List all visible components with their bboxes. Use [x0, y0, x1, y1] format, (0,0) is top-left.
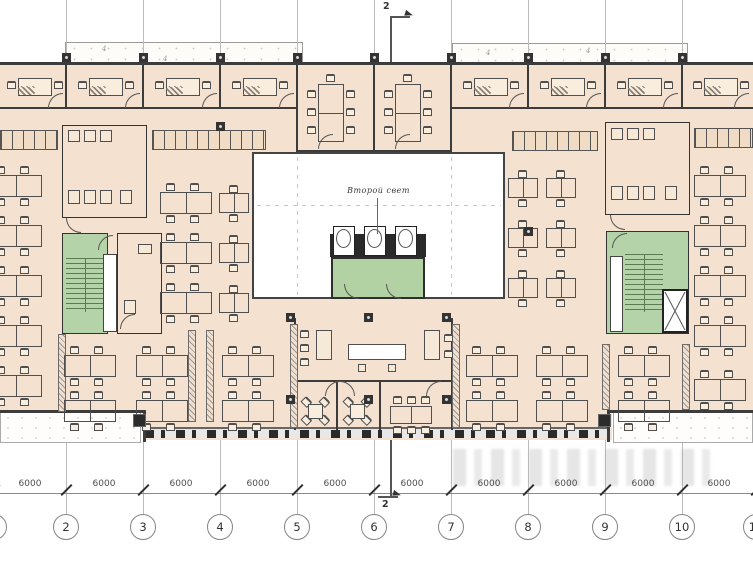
canopy-mark: 4: [586, 47, 590, 55]
section-line-top: [390, 16, 392, 62]
chair: [20, 366, 29, 374]
chair: [307, 126, 316, 134]
chair: [20, 216, 29, 224]
chair: [423, 90, 432, 98]
chair: [556, 270, 565, 278]
floor-plan: Второй свет 2 2 600060006000600060006000…: [0, 0, 753, 565]
dimension-label: 6000: [324, 479, 347, 489]
chair: [463, 81, 472, 89]
desk: [222, 400, 274, 422]
chair: [556, 249, 565, 257]
fixture: [643, 128, 655, 140]
chair: [166, 378, 175, 386]
chair: [556, 220, 565, 228]
chair: [556, 170, 565, 178]
section-label-top: 2: [383, 1, 390, 12]
desk: [0, 325, 42, 347]
section-label-bottom: 2: [382, 499, 389, 510]
desk: [160, 242, 212, 264]
chair: [421, 426, 430, 434]
chair: [228, 423, 237, 431]
chair: [518, 299, 527, 307]
chair: [700, 216, 709, 224]
column: [139, 53, 148, 62]
fixture: [68, 130, 80, 142]
chair: [346, 108, 355, 116]
grid-bubble: 1: [0, 514, 7, 540]
dimension-label: 6000: [478, 479, 501, 489]
chair: [142, 378, 151, 386]
desk: [508, 178, 538, 198]
chair: [229, 235, 238, 243]
wall: [0, 107, 297, 109]
stool: [358, 364, 366, 372]
chair: [407, 396, 416, 404]
grid-bubble: 8: [515, 514, 541, 540]
desk-hatch: [19, 87, 35, 95]
chair: [724, 348, 733, 356]
section-line-bottom: [390, 440, 392, 497]
desk: [0, 175, 42, 197]
desk-hatch: [552, 87, 568, 95]
chair: [229, 285, 238, 293]
chair: [252, 391, 261, 399]
chair: [78, 81, 87, 89]
curtain-wall-band: [145, 430, 610, 438]
chair: [648, 391, 657, 399]
grid-bubble: 10: [669, 514, 695, 540]
chair: [0, 366, 5, 374]
desk: [0, 375, 42, 397]
chair: [700, 370, 709, 378]
chair: [252, 378, 261, 386]
dimension-label: 6000: [632, 479, 655, 489]
fixture: [627, 128, 639, 140]
chair: [166, 183, 175, 191]
desk: [536, 355, 588, 377]
partition-screen: [206, 330, 214, 422]
dimension-label: 6000: [93, 479, 116, 489]
dimension-tick: [0, 484, 1, 496]
wall: [451, 107, 753, 109]
chair: [566, 423, 575, 431]
column: [293, 53, 302, 62]
column: [524, 53, 533, 62]
chair: [125, 81, 134, 89]
cabinet-row: [512, 131, 598, 151]
chair: [0, 216, 5, 224]
chair: [542, 391, 551, 399]
desk: [694, 379, 746, 401]
chair: [556, 299, 565, 307]
chair: [624, 423, 633, 431]
chair: [566, 391, 575, 399]
fixture: [68, 190, 80, 204]
desk: [0, 225, 42, 247]
chair: [384, 108, 393, 116]
grid-bubble: 7: [438, 514, 464, 540]
wall: [65, 64, 67, 107]
desk: [219, 243, 249, 263]
wall: [219, 64, 221, 107]
chair: [0, 348, 5, 356]
chair: [326, 74, 335, 82]
chair: [566, 378, 575, 386]
canopy-mark: 4: [102, 45, 106, 53]
stair-treads-left: [66, 258, 104, 312]
shaft-right: [662, 289, 688, 333]
chair: [0, 198, 5, 206]
chair: [664, 81, 673, 89]
chair: [142, 391, 151, 399]
chair: [648, 378, 657, 386]
chair: [700, 348, 709, 356]
fixture: [665, 186, 677, 200]
column: [364, 313, 373, 322]
chair: [472, 391, 481, 399]
desk: [0, 275, 42, 297]
desk: [160, 292, 212, 314]
cabinet-row: [152, 130, 266, 150]
desk-hatch: [629, 87, 645, 95]
grid-bubble: 11: [743, 514, 753, 540]
desk: [546, 228, 576, 248]
chair: [252, 423, 261, 431]
dimension-label: 6000: [708, 479, 731, 489]
elevator-left: [103, 254, 117, 332]
chair: [166, 233, 175, 241]
dimension-label: 6000: [19, 479, 42, 489]
fixture: [100, 130, 112, 142]
chair: [566, 346, 575, 354]
chair: [724, 248, 733, 256]
desk: [694, 325, 746, 347]
desk: [219, 193, 249, 213]
chair: [190, 233, 199, 241]
chair: [346, 126, 355, 134]
chair: [624, 391, 633, 399]
chair: [724, 298, 733, 306]
chair: [70, 346, 79, 354]
chair: [423, 126, 432, 134]
chair: [190, 183, 199, 191]
chair: [724, 216, 733, 224]
wall: [296, 64, 298, 152]
chair: [444, 350, 453, 358]
chair: [518, 270, 527, 278]
desk-hatch: [244, 87, 260, 95]
chair: [403, 74, 412, 82]
chair: [166, 423, 175, 431]
chair: [624, 346, 633, 354]
chair: [542, 423, 551, 431]
dimension-label: 6000: [555, 479, 578, 489]
chair: [346, 90, 355, 98]
desk: [466, 355, 518, 377]
chair: [20, 198, 29, 206]
wall: [604, 64, 606, 107]
chair: [740, 81, 749, 89]
cafe-table: [350, 404, 365, 419]
elevator-axis-line: [377, 198, 378, 234]
atrium-axis-dashed: [451, 157, 452, 295]
dimension-label: 6000: [170, 479, 193, 489]
fixture: [84, 130, 96, 142]
fixture: [611, 128, 623, 140]
chair: [472, 378, 481, 386]
cabinet-row: [0, 130, 58, 150]
canopy-mark: 4: [486, 49, 490, 57]
chair: [700, 316, 709, 324]
desk: [694, 225, 746, 247]
atrium-label: Второй свет: [254, 186, 503, 195]
wall: [379, 382, 381, 430]
chair: [70, 378, 79, 386]
chair: [7, 81, 16, 89]
chair: [166, 315, 175, 323]
chair: [166, 283, 175, 291]
chair: [20, 266, 29, 274]
fixture: [124, 300, 136, 314]
atrium-axis-dashed: [297, 157, 298, 295]
stair-treads-right: [625, 254, 663, 312]
chair: [724, 370, 733, 378]
chair: [20, 348, 29, 356]
chair: [166, 215, 175, 223]
chair: [0, 298, 5, 306]
chair: [155, 81, 164, 89]
chair: [724, 316, 733, 324]
grid-bubble: 4: [207, 514, 233, 540]
chair: [421, 396, 430, 404]
chair: [624, 378, 633, 386]
chair: [724, 402, 733, 410]
stool: [388, 364, 396, 372]
chair: [407, 426, 416, 434]
chair: [384, 126, 393, 134]
chair: [20, 398, 29, 406]
grid-bubble: 5: [284, 514, 310, 540]
partition-screen: [290, 324, 298, 428]
chair: [693, 81, 702, 89]
desk: [64, 355, 116, 377]
wall: [296, 150, 452, 152]
column: [364, 395, 373, 404]
wall: [373, 64, 375, 152]
chair: [496, 423, 505, 431]
chair: [190, 265, 199, 273]
desk: [466, 400, 518, 422]
desk: [694, 275, 746, 297]
chair: [496, 346, 505, 354]
desk-hatch: [167, 87, 183, 95]
chair: [20, 316, 29, 324]
column: [524, 227, 533, 236]
chair: [228, 346, 237, 354]
chair: [700, 298, 709, 306]
chair: [510, 81, 519, 89]
desk: [546, 178, 576, 198]
chair: [307, 90, 316, 98]
chair: [229, 214, 238, 222]
fixture: [643, 186, 655, 200]
chair: [70, 391, 79, 399]
fixture: [316, 330, 332, 360]
chair: [190, 215, 199, 223]
dimension-label: 6000: [401, 479, 424, 489]
column: [286, 313, 295, 322]
column: [442, 395, 451, 404]
chair: [617, 81, 626, 89]
column: [286, 395, 295, 404]
chair: [94, 391, 103, 399]
chair: [232, 81, 241, 89]
shaft-x-icon: [664, 291, 686, 331]
elevator-lobby: [331, 257, 425, 299]
chair: [94, 423, 103, 431]
chair: [542, 346, 551, 354]
chair: [229, 264, 238, 272]
chair: [228, 391, 237, 399]
chair: [190, 283, 199, 291]
partition-screen: [452, 324, 460, 428]
chair: [229, 185, 238, 193]
partition-screen: [682, 344, 690, 410]
cafe-table: [308, 404, 323, 419]
desk: [508, 278, 538, 298]
meeting-table: [390, 406, 432, 424]
chair: [166, 391, 175, 399]
column: [216, 122, 225, 131]
chair: [300, 344, 309, 352]
partition-screen: [188, 330, 196, 422]
column: [62, 53, 71, 62]
wall: [450, 64, 452, 152]
chair: [700, 166, 709, 174]
wall: [527, 64, 529, 107]
chair: [142, 346, 151, 354]
chair: [0, 316, 5, 324]
chair: [542, 378, 551, 386]
chair: [423, 108, 432, 116]
column: [216, 53, 225, 62]
chair: [700, 198, 709, 206]
chair: [587, 81, 596, 89]
chair: [307, 108, 316, 116]
chair: [648, 423, 657, 431]
desk: [136, 355, 188, 377]
fixture: [627, 186, 639, 200]
chair: [190, 315, 199, 323]
chair: [252, 346, 261, 354]
chair: [166, 265, 175, 273]
chair: [472, 346, 481, 354]
column: [442, 313, 451, 322]
fixture: [611, 186, 623, 200]
fixture: [138, 244, 152, 254]
atrium-axis-dashed: [257, 205, 501, 206]
elevator-car-oval: [398, 229, 413, 248]
chair: [700, 248, 709, 256]
grid-bubble: 2: [53, 514, 79, 540]
chair: [70, 423, 79, 431]
chair: [556, 199, 565, 207]
chair: [20, 298, 29, 306]
fixture: [84, 190, 96, 204]
fixture: [120, 190, 132, 204]
chair: [444, 334, 453, 342]
elevator-car: [364, 226, 386, 256]
chair: [279, 81, 288, 89]
desk: [536, 400, 588, 422]
wall: [681, 64, 683, 107]
desk: [219, 293, 249, 313]
desk: [618, 355, 670, 377]
desk: [546, 278, 576, 298]
chair: [724, 198, 733, 206]
curtain-wall-line: [145, 427, 610, 429]
dimension-label: 6000: [247, 479, 270, 489]
chair: [700, 402, 709, 410]
chair: [20, 248, 29, 256]
elevator-car-oval: [336, 229, 351, 248]
fixture: [424, 330, 440, 360]
chair: [393, 426, 402, 434]
cabinet-row: [694, 128, 753, 148]
desk: [618, 400, 670, 422]
chair: [94, 346, 103, 354]
grid-bubble: 6: [361, 514, 387, 540]
elevator-strip-right: [610, 256, 623, 332]
chair: [518, 199, 527, 207]
dimension-line: [0, 493, 753, 494]
fixture: [100, 190, 112, 204]
grid-bubble: 9: [592, 514, 618, 540]
column-junction: [598, 414, 611, 427]
chair: [54, 81, 63, 89]
chair: [166, 346, 175, 354]
chair: [0, 266, 5, 274]
desk: [64, 400, 116, 422]
partition-screen: [602, 344, 610, 410]
desk: [222, 355, 274, 377]
chair: [540, 81, 549, 89]
chair: [518, 249, 527, 257]
wall: [0, 62, 753, 65]
chair: [384, 90, 393, 98]
reception-counter: [348, 344, 406, 360]
desk-hatch: [90, 87, 106, 95]
chair: [229, 314, 238, 322]
grid-bubble: 3: [130, 514, 156, 540]
column: [601, 53, 610, 62]
chair: [496, 391, 505, 399]
elevator-car: [333, 226, 355, 256]
chair: [648, 346, 657, 354]
elevator-car: [395, 226, 417, 256]
chair: [393, 396, 402, 404]
chair: [724, 166, 733, 174]
chair: [94, 378, 103, 386]
elevator-car-oval: [367, 229, 382, 248]
chair: [0, 248, 5, 256]
column: [678, 53, 687, 62]
chair: [202, 81, 211, 89]
column-junction: [133, 414, 146, 427]
wall: [294, 380, 453, 382]
chair: [20, 166, 29, 174]
canopy-left: [65, 42, 303, 63]
